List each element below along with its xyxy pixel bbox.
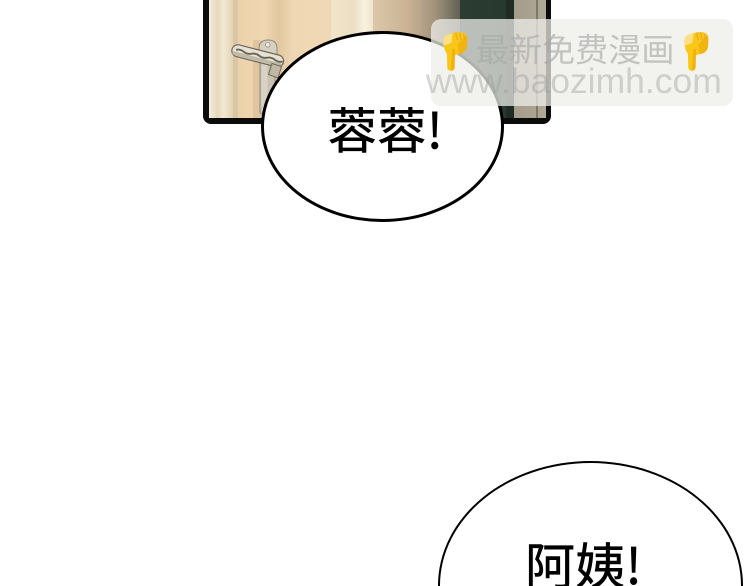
svg-text:www.baozimh.com: www.baozimh.com (425, 61, 722, 101)
